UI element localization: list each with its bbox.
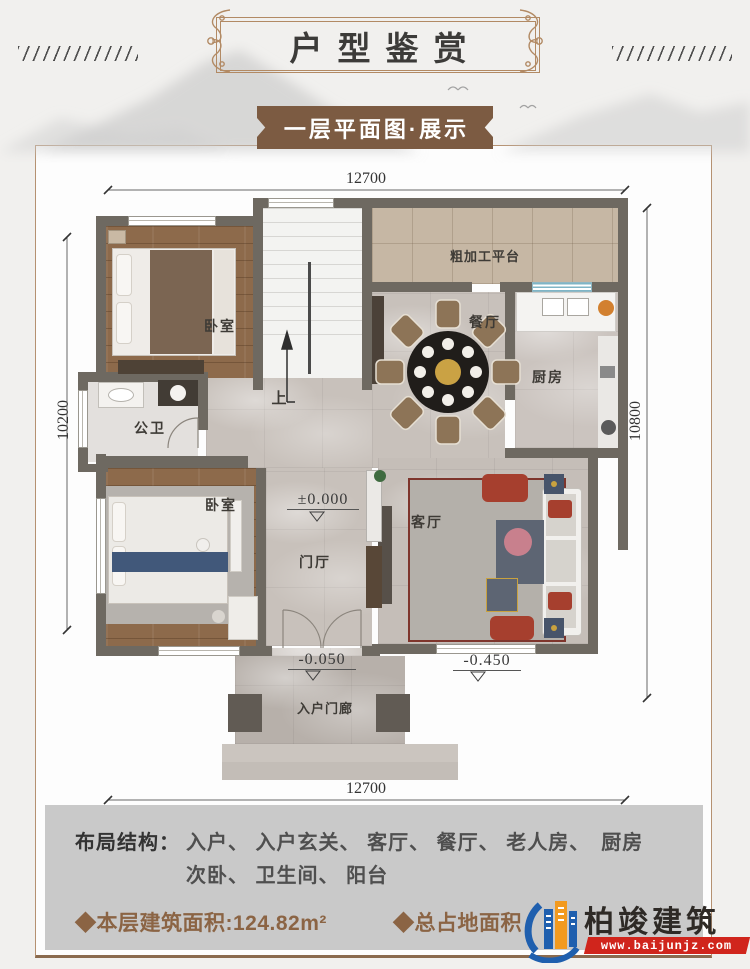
wall — [96, 456, 248, 468]
wash-basin — [108, 388, 134, 402]
red-pillow — [548, 500, 572, 518]
appliance — [600, 366, 615, 378]
layout-structure-label: 布局结构： — [75, 827, 180, 893]
porch-step-1 — [222, 744, 458, 763]
hall-cabinet — [366, 546, 382, 608]
birds — [448, 87, 536, 108]
gold-decor — [551, 481, 557, 487]
stove-burner — [601, 420, 616, 435]
wall — [618, 198, 628, 550]
wall — [588, 458, 598, 654]
porch-step-2 — [222, 762, 458, 780]
pillow — [116, 254, 132, 296]
wall — [368, 282, 472, 292]
stairs-up-label: 上 — [270, 391, 288, 407]
mountain-right — [500, 94, 750, 152]
page-title: 户型鉴赏 — [275, 22, 482, 70]
dimension-top: 12700 — [318, 171, 414, 187]
subtitle-text: 一层平面图·展示 — [281, 112, 469, 144]
room-label-platform: 粗加工平台 — [440, 249, 530, 265]
stair-rail — [308, 262, 311, 374]
plant — [374, 470, 386, 482]
wall — [500, 282, 532, 292]
dimension-left: 10200 — [56, 372, 72, 468]
nightstand — [108, 230, 126, 244]
cooking-pot — [598, 300, 614, 316]
room-label-bedroom-top: 卧室 — [192, 318, 248, 334]
sofa-cushion — [546, 540, 576, 582]
window — [96, 498, 106, 594]
flower-decor — [504, 528, 532, 556]
room-label-kitchen: 厨房 — [522, 369, 574, 385]
logo-building-icon — [520, 893, 584, 963]
room-label-porch: 入户门廊 — [285, 701, 365, 717]
logo-url-ribbon: www.baijunjz.com — [584, 937, 750, 954]
pillow — [112, 502, 126, 542]
armchair — [482, 474, 528, 502]
red-pillow — [548, 592, 572, 610]
gold-decor — [551, 625, 557, 631]
room-floor-platform — [372, 208, 618, 284]
pillow — [116, 302, 132, 344]
wall — [592, 282, 618, 292]
bench-seat — [490, 616, 534, 640]
room-label-bathroom: 公卫 — [124, 420, 176, 436]
stair-treads — [262, 208, 362, 336]
title-banner: 户型鉴赏 — [216, 17, 540, 73]
blanket — [150, 250, 212, 354]
room-label-bedroom-bottom: 卧室 — [195, 497, 247, 513]
wall — [362, 292, 372, 390]
room-label-living: 客厅 — [401, 514, 453, 530]
wall — [362, 646, 380, 656]
room-label-dining: 餐厅 — [459, 314, 511, 330]
dimension-right: 10800 — [628, 373, 644, 469]
total-area-text: ◆总占地面积 — [393, 907, 522, 937]
desk-chair — [212, 610, 225, 623]
porch-pillar-left — [228, 694, 262, 732]
corner-flourish-left-icon — [200, 4, 234, 78]
wall — [505, 292, 515, 400]
kitchen-window — [532, 282, 592, 292]
window — [128, 216, 216, 226]
elevation-outside-living: -0.450 — [453, 652, 521, 671]
coffee-table-small — [486, 578, 518, 612]
wall — [536, 644, 598, 654]
window — [78, 390, 88, 448]
wall — [198, 372, 208, 430]
wall — [96, 216, 106, 380]
round-sink — [170, 385, 186, 401]
bed-fold — [214, 250, 234, 354]
wall — [372, 644, 436, 654]
wall — [253, 208, 263, 390]
room-floor-hall — [206, 378, 372, 468]
elevation-porch: -0.050 — [288, 651, 356, 670]
layout-structure-row: 布局结构： 入户、 入户玄关、 客厅、 餐厅、 老人房、 厨房 次卧、 卫生间、… — [75, 827, 643, 893]
floor-area-text: ◆本层建筑面积:124.82m² — [75, 907, 327, 937]
dimension-bottom: 12700 — [318, 781, 414, 797]
desk — [228, 596, 258, 640]
layout-line-2: 次卧、 卫生间、 阳台 — [186, 860, 643, 893]
window — [268, 198, 334, 208]
kitchen-sink — [542, 298, 564, 316]
wall — [256, 646, 272, 656]
corner-flourish-right-icon — [516, 4, 550, 78]
logo-url: www.baijunjz.com — [601, 939, 732, 953]
layout-line-1: 入户、 入户玄关、 客厅、 餐厅、 老人房、 厨房 — [186, 827, 643, 860]
elevation-foyer: ±0.000 — [287, 491, 359, 510]
window — [158, 646, 240, 656]
bed-runner — [112, 552, 228, 572]
kitchen-sink — [567, 298, 589, 316]
wall — [505, 448, 628, 458]
company-logo: 柏竣建筑 www.baijunjz.com — [520, 893, 748, 969]
dining-cabinet — [372, 296, 384, 384]
layout-structure-list: 入户、 入户玄关、 客厅、 餐厅、 老人房、 厨房 次卧、 卫生间、 阳台 — [186, 827, 643, 893]
stool — [196, 538, 210, 552]
room-label-foyer: 门厅 — [289, 554, 341, 570]
porch-pillar-right — [376, 694, 410, 732]
logo-company-name: 柏竣建筑 — [584, 897, 720, 941]
subtitle-banner: 一层平面图·展示 — [257, 106, 493, 149]
dresser — [118, 360, 204, 374]
wall — [362, 208, 372, 292]
